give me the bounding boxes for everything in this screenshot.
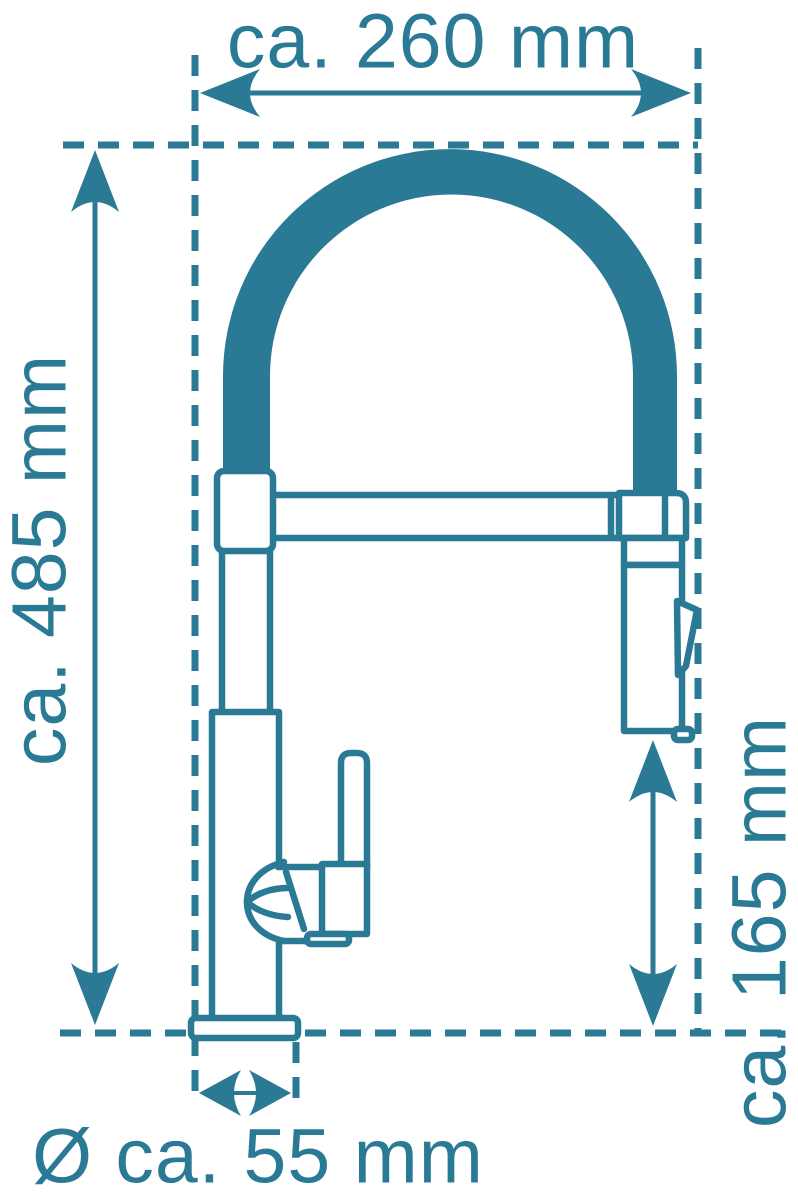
spout-arm [271,495,622,538]
riser-tube [222,549,270,716]
handle-lever [341,753,367,868]
dimension-label-height: ca. 485 mm [2,354,79,766]
dimension-label-width: ca. 260 mm [227,4,639,81]
spray-head-connector [619,493,686,538]
cartridge-diagonal-line [286,872,304,929]
handle-cartridge [322,864,367,934]
dimension-arrow-spray-height [629,740,677,1026]
dimension-label-base-diameter: Ø ca. 55 mm [32,1119,484,1196]
base-plate [191,1018,298,1038]
spray-trigger [677,601,697,675]
hose-collar [217,471,273,551]
faucet-dimension-diagram: ca. 260 mm ca. 485 mm ca. 165 mm Ø ca. 5… [0,0,798,1200]
faucet-outline [191,149,697,1038]
spray-head-ring [624,538,682,565]
spray-head-lip [674,729,692,740]
diagram-drawing [0,0,798,1200]
dimension-arrow-base-diameter [199,1070,291,1116]
dimension-label-spray-height: ca. 165 mm [722,716,798,1128]
cartridge-lip [307,934,349,944]
spray-head-body [624,565,682,731]
flex-hose-arc [223,149,677,497]
